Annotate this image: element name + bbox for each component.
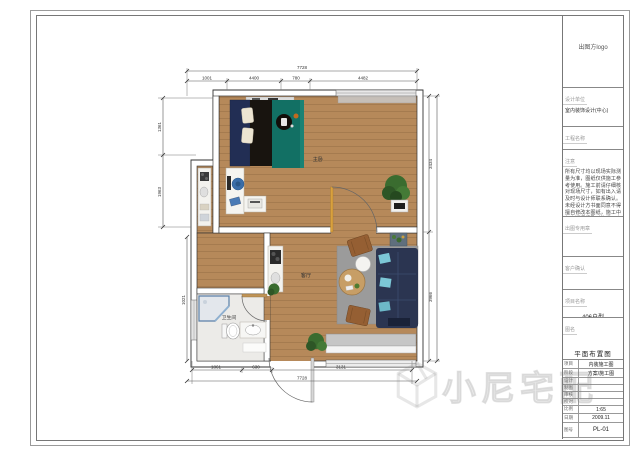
- title-block: 出图方logo 设计单位 室内装饰设计(中心) 工程名称 注意 所有尺寸均以现场…: [562, 16, 623, 439]
- bay-sill: [326, 346, 416, 353]
- floor-plan: 主卧 客厅 卫生间: [0, 0, 640, 452]
- entry-threshold: [271, 357, 313, 361]
- entry-door-leaf: [311, 358, 314, 402]
- svg-text:1861: 1861: [211, 365, 222, 370]
- svg-text:7728: 7728: [297, 376, 308, 381]
- bathroom-door-leaf: [242, 294, 267, 297]
- table-row: 审核: [563, 392, 623, 399]
- svg-text:630: 630: [252, 365, 260, 370]
- bedroom-rug-edge: [300, 100, 304, 168]
- wall-bedroom-bottom-right: [376, 227, 417, 233]
- row-label: 审核: [563, 392, 579, 398]
- pillow: [241, 107, 254, 123]
- row-label: 阶段: [563, 369, 579, 377]
- sofa-throw: [388, 318, 410, 326]
- row-value: 方案/施工图: [579, 370, 623, 377]
- client-label: 客户确认: [563, 266, 587, 274]
- scale-value: 1:65: [579, 407, 623, 413]
- wall-bathroom-top: [197, 288, 264, 294]
- row-label: 制图: [563, 385, 579, 391]
- deco-orange: [294, 114, 299, 119]
- table-row-scale: 比例 1:65: [563, 406, 623, 414]
- table-row-drawing-no: 图号 PL-01: [563, 423, 623, 438]
- bathroom-label: 卫生间: [222, 314, 237, 321]
- table-row: 制图: [563, 385, 623, 392]
- notes-text: 所有尺寸均以现场实际测量为准，图纸仅供施工参考使用。施工前请仔细核对现场尺寸，如…: [563, 168, 623, 217]
- row-label: 图号: [563, 423, 579, 437]
- table-deco: [345, 275, 352, 282]
- title-table: 项目 内装施工图 阶段 方案/施工图 设计 制图 审核 校对: [563, 360, 623, 439]
- row-value: 内装施工图: [579, 361, 623, 368]
- table-row: 阶段 方案/施工图: [563, 369, 623, 378]
- bedroom-rug: [272, 100, 304, 168]
- living-label: 客厅: [301, 271, 311, 279]
- sofa-pillow: [378, 301, 390, 311]
- project-name-label: 项目名称: [563, 299, 587, 307]
- bedroom-door-opening: [331, 227, 376, 234]
- svg-text:780: 780: [292, 76, 300, 81]
- row-label: 项目: [563, 360, 579, 368]
- table-row-date: 日期 2009.11: [563, 414, 623, 423]
- desk: [226, 168, 244, 214]
- project-heading: 工程名称: [563, 136, 587, 144]
- bedroom-door-leaf: [331, 187, 334, 232]
- tv-screen: [394, 203, 405, 209]
- svg-text:1963: 1963: [157, 186, 162, 197]
- row-label: 日期: [563, 414, 579, 422]
- logo-text: 出图方logo: [563, 42, 623, 51]
- wall-bedroom-bottom: [219, 227, 331, 233]
- monitor: [227, 176, 231, 190]
- faucet: [252, 324, 254, 326]
- bathroom-door-opening: [264, 296, 270, 320]
- row-label: 设计: [563, 378, 579, 384]
- table-plant: [355, 284, 360, 289]
- svg-text:3434: 3434: [428, 158, 433, 169]
- svg-text:7728: 7728: [297, 65, 308, 70]
- seal-section: 出图专用章: [563, 217, 623, 257]
- svg-text:1361: 1361: [157, 121, 162, 132]
- notes-label: 注意: [563, 159, 577, 167]
- svg-text:3966: 3966: [428, 291, 433, 302]
- pouf-deco: [281, 118, 287, 126]
- table-row: 项目 内装施工图: [563, 360, 623, 369]
- counter-item: [200, 214, 209, 221]
- drawing-title-label: 图名: [563, 327, 577, 335]
- desk-chair-center: [236, 182, 241, 187]
- drawing-sheet: 主卧 客厅 卫生间: [0, 0, 640, 452]
- drawing-title-section: 图名 平面布置图: [563, 318, 623, 360]
- table-row: 设计: [563, 378, 623, 385]
- curtain-band: [338, 96, 416, 103]
- project-name-section: 项目名称 406户型: [563, 290, 623, 318]
- notes-section: 注意 所有尺寸均以现场实际测量为准，图纸仅供施工参考使用。施工前请仔细核对现场尺…: [563, 150, 623, 217]
- date-value: 2009.11: [579, 415, 623, 421]
- cooktop-mid: [270, 250, 281, 264]
- company-label: 设计单位: [563, 97, 587, 105]
- logo-section: 出图方logo: [563, 16, 623, 88]
- table-row: 校对: [563, 399, 623, 406]
- sink-mid: [271, 273, 280, 284]
- company-section: 设计单位 室内装饰设计(中心): [563, 88, 623, 127]
- drawing-title: 平面布置图: [563, 348, 623, 358]
- row-label: 比例: [563, 406, 579, 413]
- side-table: [356, 257, 371, 272]
- shower-drain: [203, 300, 207, 304]
- client-section: 客户确认: [563, 257, 623, 290]
- wall-bedroom-left: [213, 96, 219, 233]
- sink-left: [200, 187, 208, 197]
- project-heading-section: 工程名称: [563, 127, 623, 150]
- sofa-pillow: [379, 277, 391, 287]
- svg-text:4400: 4400: [249, 76, 260, 81]
- cooktop-left: [200, 172, 209, 181]
- deco-cup: [291, 125, 294, 128]
- coffee-table: [339, 269, 365, 295]
- printer: [248, 199, 262, 208]
- printer-slot: [250, 201, 260, 203]
- svg-text:1021: 1021: [181, 294, 186, 305]
- company-name: 室内装饰设计(中心): [563, 106, 623, 115]
- bath-mat: [243, 343, 266, 352]
- bay-bench: [326, 334, 416, 346]
- svg-text:1001: 1001: [202, 76, 213, 81]
- svg-text:3131: 3131: [336, 365, 347, 370]
- drawing-number: PL-01: [579, 427, 623, 433]
- seal-label: 出图专用章: [563, 226, 592, 234]
- pillow: [241, 128, 253, 144]
- bedroom-label: 主卧: [313, 155, 323, 163]
- svg-text:4482: 4482: [358, 76, 369, 81]
- counter-item: [200, 204, 209, 210]
- row-label: 校对: [563, 399, 579, 405]
